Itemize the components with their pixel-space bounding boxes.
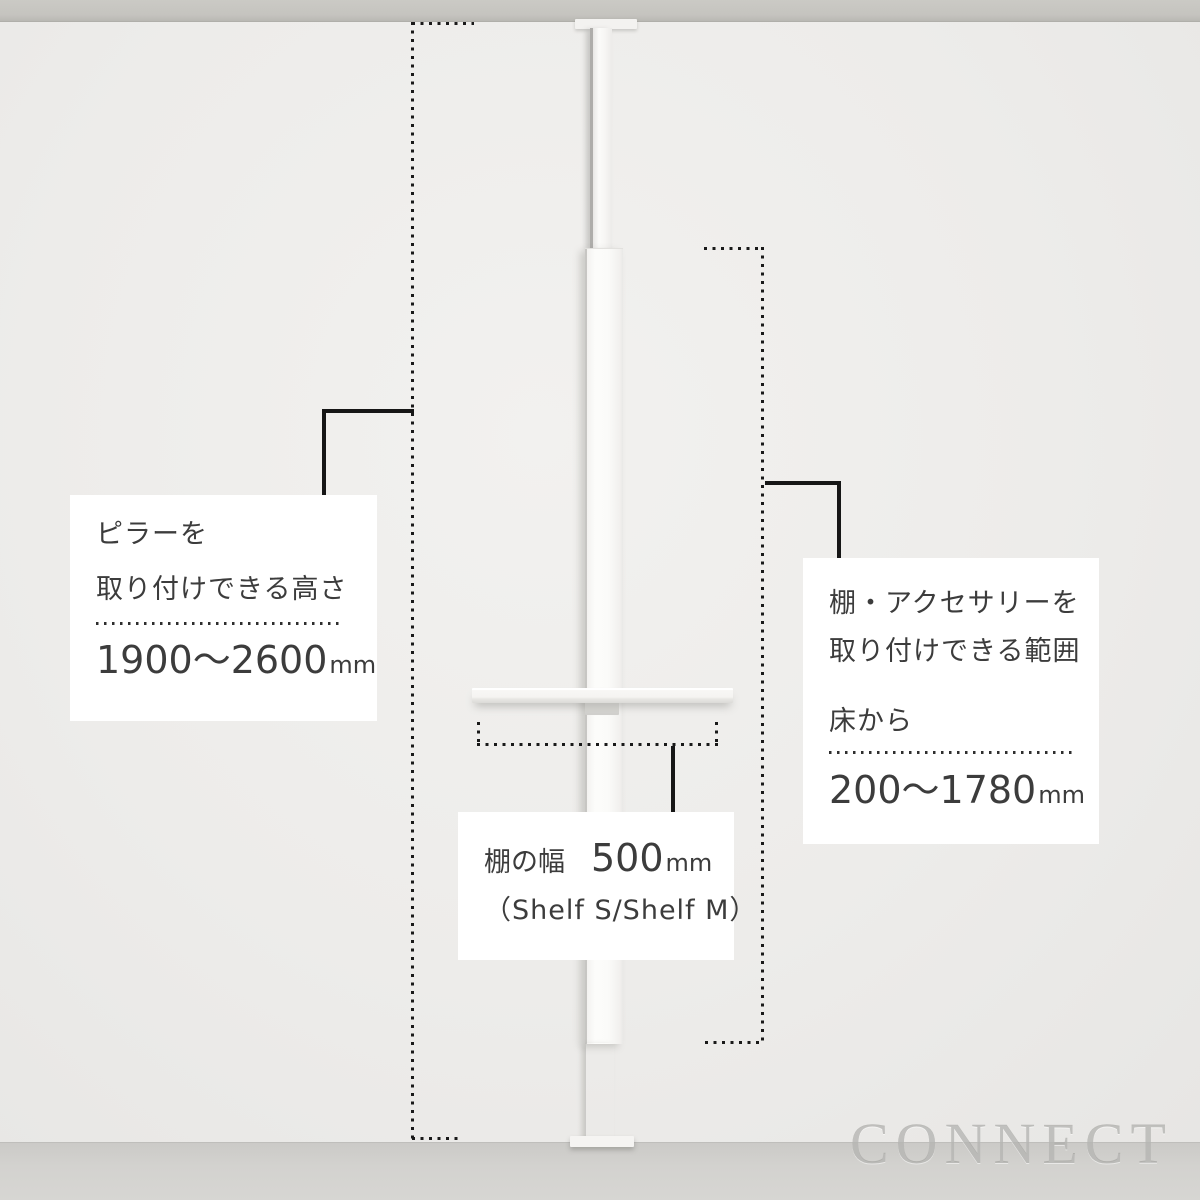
shelf-width-unit: mm [666,849,713,877]
range-vertical-dotted-line [761,247,764,1044]
pillar-height-value: 1900〜2600 [96,640,327,680]
shelf-width-label-box: 棚の幅 500 mm （Shelf S/Shelf M） [458,812,734,960]
pillar-height-unit: mm [329,651,376,679]
pillar-height-top-tick-dotted [412,22,474,25]
connect-watermark: CONNECT [850,1114,1190,1174]
pillar-height-value-row: 1900〜2600 mm [96,640,351,680]
pole-floor-base [570,1136,634,1147]
pillar-label-connector-vertical [322,409,326,497]
shelf-width-value: 500 [591,838,664,878]
range-label-connector-vertical [837,481,841,560]
range-label-connector-horizontal [765,481,841,485]
shelf-width-horizontal-dotted-line [477,743,718,746]
product-dimension-diagram: ピラーを 取り付けできる高さ 1900〜2600 mm 棚・アクセサリーを 取り… [0,0,1200,1200]
shelf-width-value-row: 棚の幅 500 mm [484,838,708,879]
pole-lower-tube [586,1043,614,1139]
pillar-height-vertical-dotted-line [411,22,414,1141]
accessory-range-text-line3: 床から [829,708,1073,735]
pillar-height-text-line2: 取り付けできる高さ [96,576,351,603]
accessory-range-label-box: 棚・アクセサリーを 取り付けできる範囲 床から 200〜1780 mm [803,558,1099,844]
accessory-range-text-line2: 取り付けできる範囲 [829,638,1073,665]
pillar-label-connector-horizontal [322,409,414,413]
shelf-mounting-bracket [585,701,619,715]
accessory-range-value: 200〜1780 [829,770,1036,810]
range-top-tick-dotted [704,247,764,250]
accessory-range-unit: mm [1038,781,1085,809]
pillar-height-bottom-tick-dotted [412,1137,462,1140]
shelf-label-connector-vertical [671,746,675,814]
range-bottom-tick-dotted [705,1041,764,1044]
pole-upper-extension-tube [590,28,612,249]
pillar-height-text-line1: ピラーを [96,521,351,548]
shelf-board [472,688,733,703]
accessory-range-dotted-separator [829,751,1073,754]
shelf-width-note: （Shelf S/Shelf M） [484,897,708,924]
accessory-range-value-row: 200〜1780 mm [829,770,1073,810]
pillar-height-label-box: ピラーを 取り付けできる高さ 1900〜2600 mm [70,495,377,721]
pillar-height-dotted-separator [96,622,342,625]
shelf-width-label: 棚の幅 [484,840,565,879]
accessory-range-text-line1: 棚・アクセサリーを [829,590,1073,617]
